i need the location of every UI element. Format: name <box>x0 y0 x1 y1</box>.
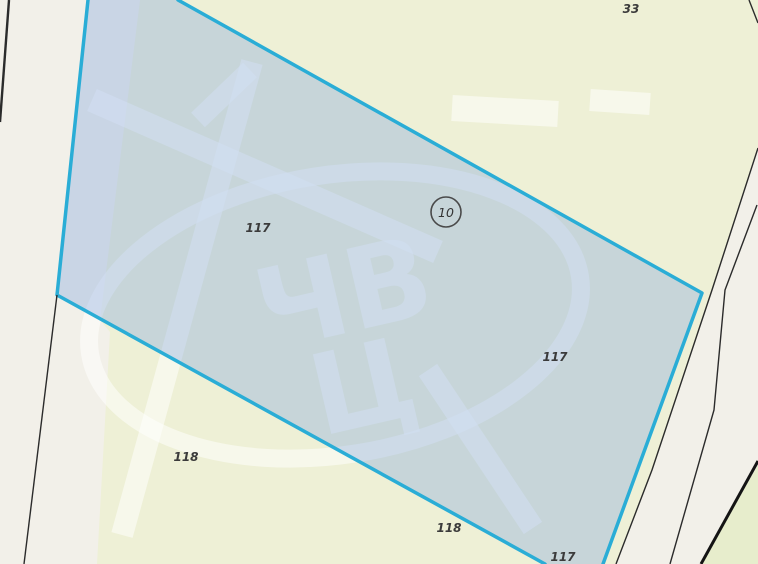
map-viewport[interactable]: ЧВ Ц 10 33 117 117 118 118 117 <box>0 0 758 564</box>
watermark-band-icon <box>590 100 650 104</box>
parcel-label-118-bottom: 118 <box>436 521 461 535</box>
parcel-label-117-left: 117 <box>245 221 271 235</box>
parcel-label-117-right: 117 <box>542 350 568 364</box>
parcel-label-118-left: 118 <box>173 450 198 464</box>
watermark-band-icon <box>452 108 558 114</box>
marker-number: 10 <box>438 205 454 220</box>
parcel-label-117-bottom: 117 <box>550 550 576 564</box>
map-canvas[interactable]: ЧВ Ц 10 33 117 117 118 118 117 <box>0 0 758 564</box>
parcel-label-33: 33 <box>623 2 640 16</box>
